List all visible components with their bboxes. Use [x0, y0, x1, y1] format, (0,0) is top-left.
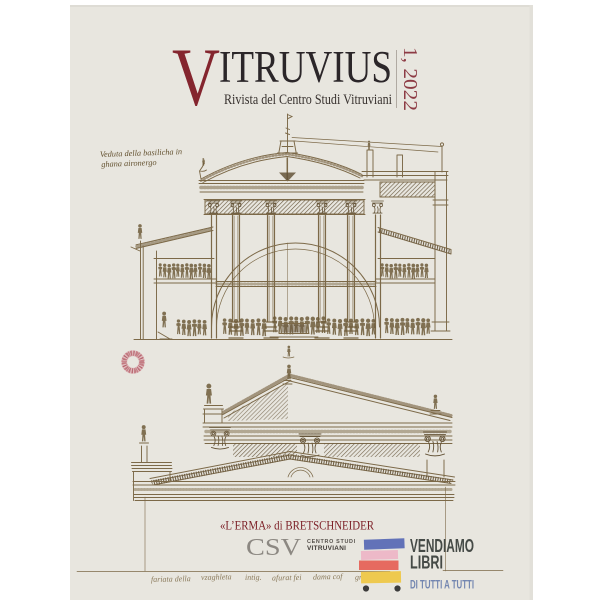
svg-text:afurat fei: afurat fei — [272, 573, 302, 583]
svg-text:V: V — [172, 31, 220, 123]
svg-text:ITRUVIUS: ITRUVIUS — [219, 42, 392, 92]
svg-text:intig.: intig. — [245, 573, 262, 582]
svg-text:LIBRI: LIBRI — [410, 552, 443, 573]
svg-text:1, 2022: 1, 2022 — [399, 47, 420, 111]
svg-text:fariata della: fariata della — [151, 574, 191, 584]
svg-text:«L’ERMA» di BRETSCHNEIDER: «L’ERMA» di BRETSCHNEIDER — [220, 519, 375, 533]
svg-text:vzaghleta: vzaghleta — [201, 572, 232, 582]
svg-text:CSV: CSV — [246, 534, 301, 561]
svg-text:Rivista del Centro Studi Vitru: Rivista del Centro Studi Vitruviani — [224, 91, 392, 108]
svg-text:dama cof: dama cof — [313, 572, 345, 582]
svg-text:DI TUTTI A TUTTI: DI TUTTI A TUTTI — [410, 580, 474, 592]
svg-text:VITRUVIANI: VITRUVIANI — [307, 545, 346, 552]
